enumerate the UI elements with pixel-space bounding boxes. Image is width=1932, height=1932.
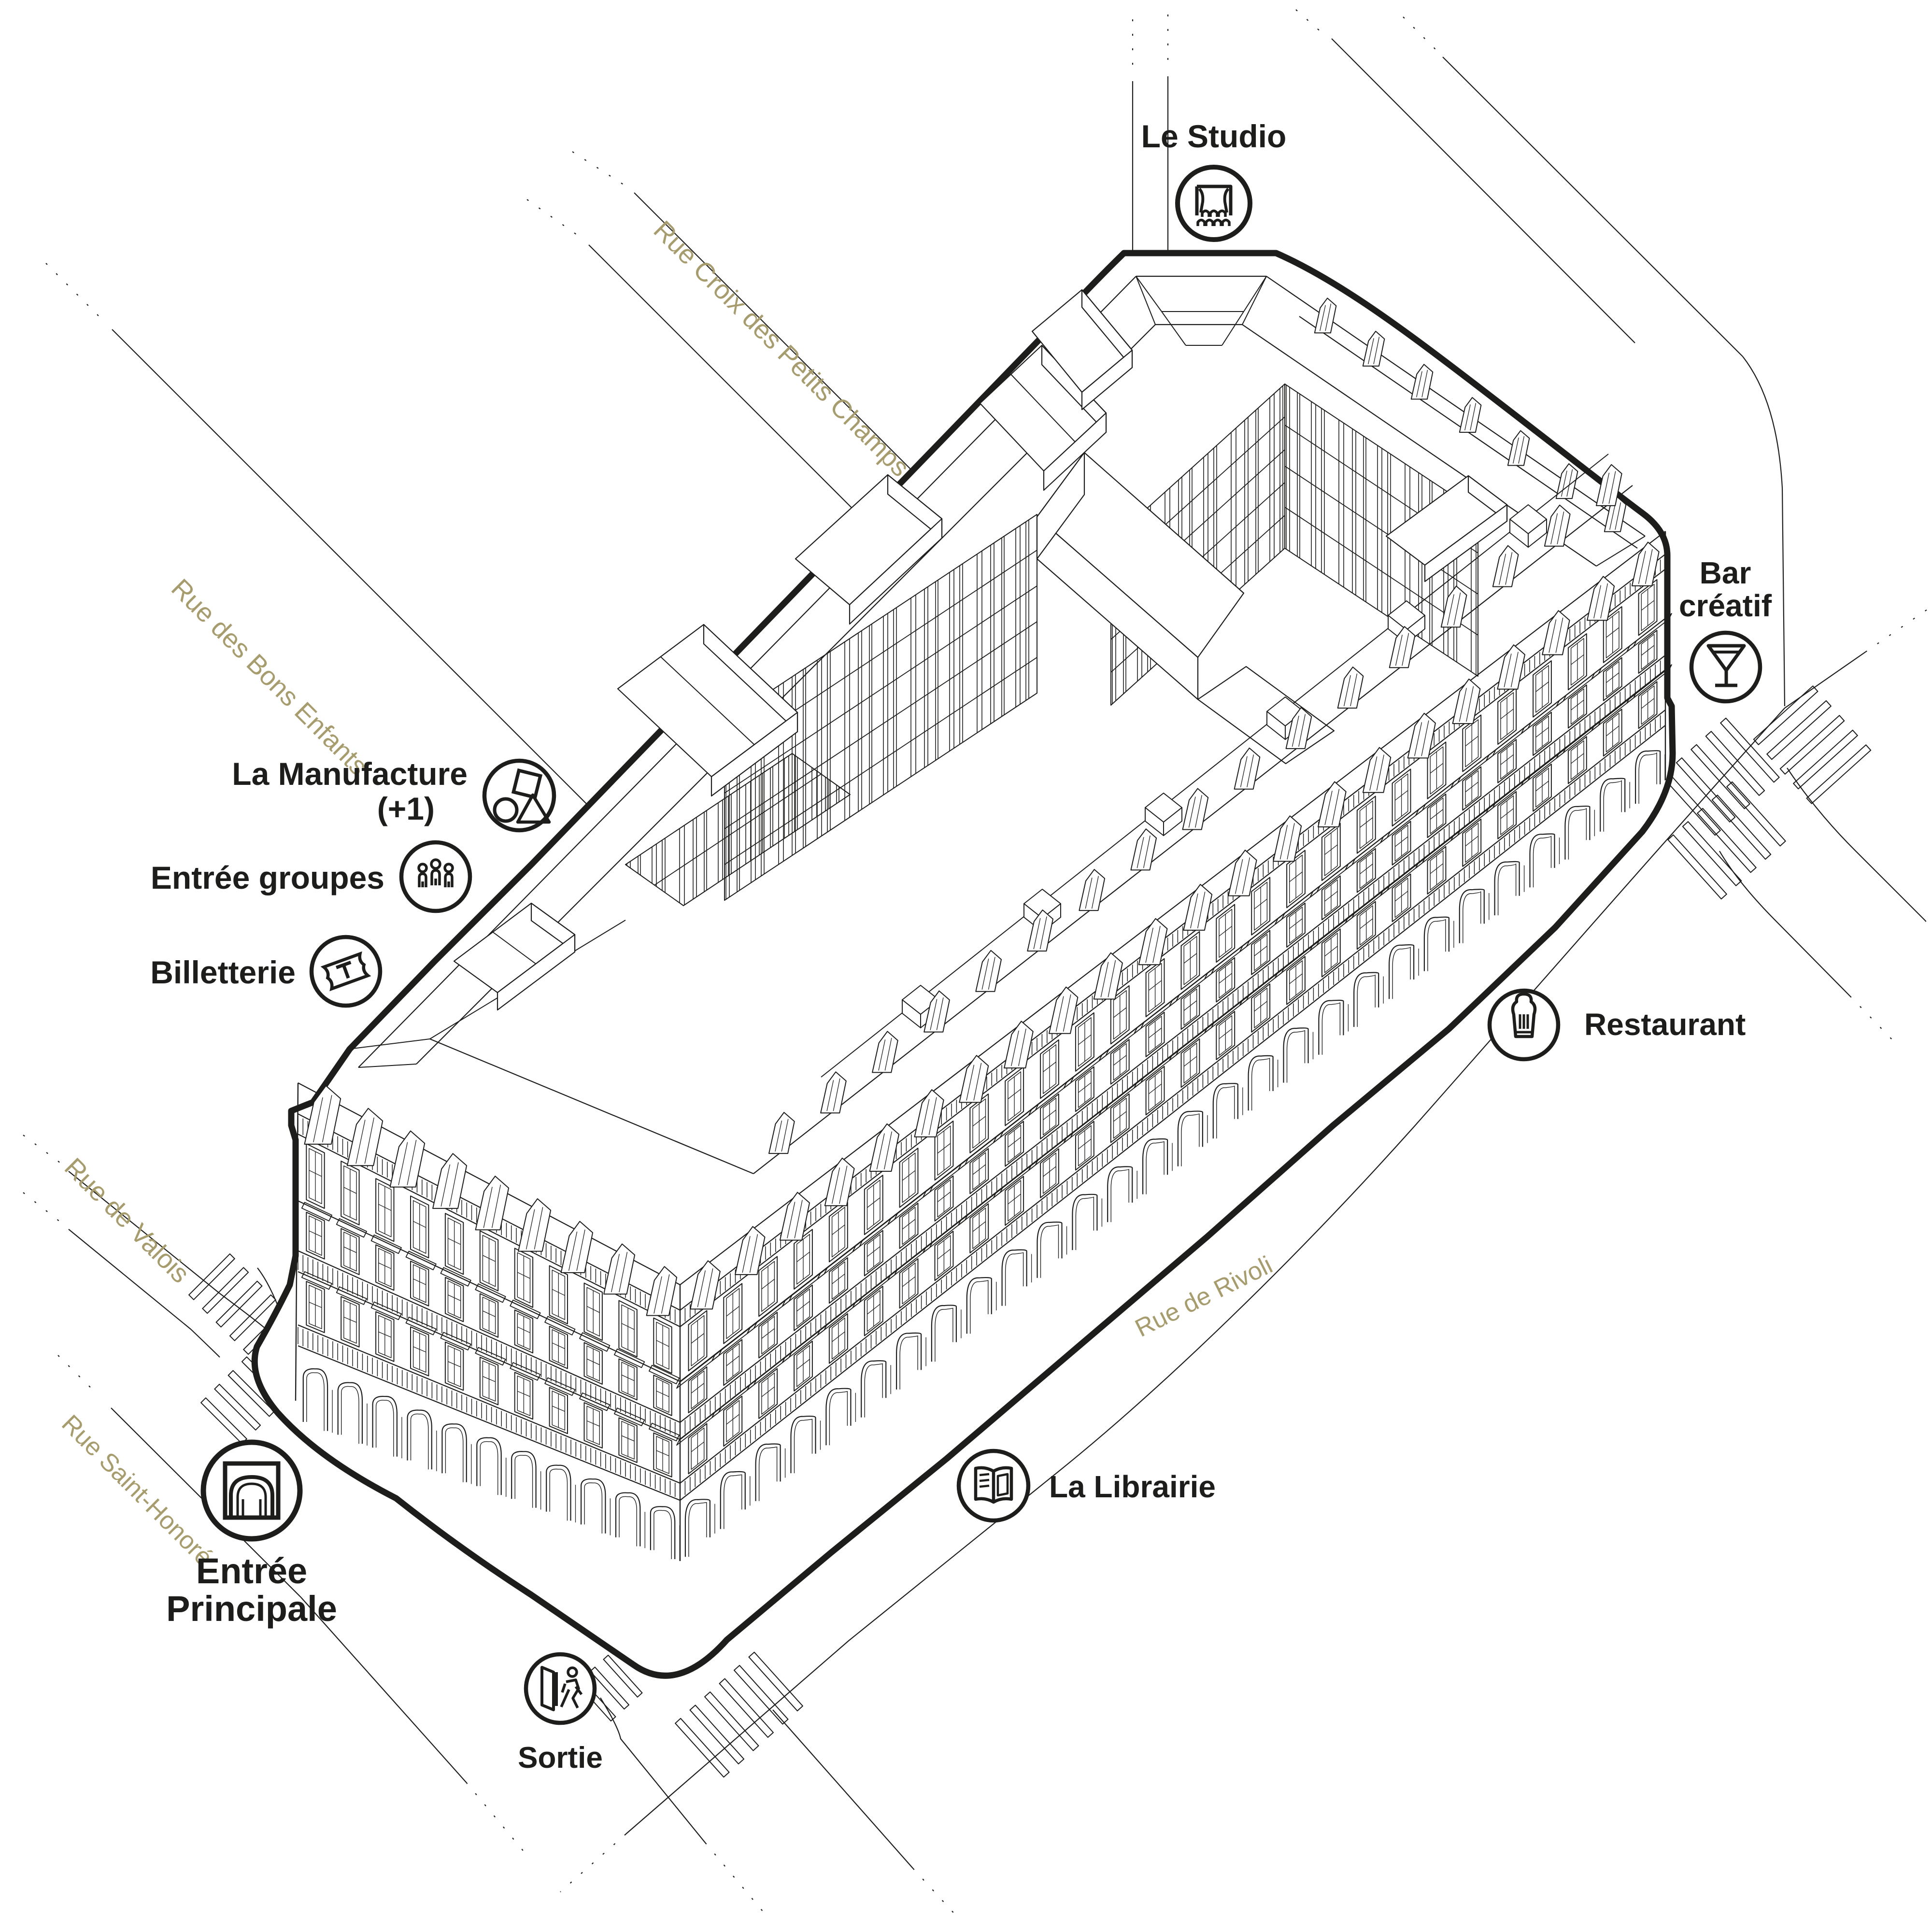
svg-text:(+1): (+1) [377,791,435,826]
svg-text:Le Studio: Le Studio [1141,118,1287,154]
svg-text:Sortie: Sortie [518,1741,603,1775]
svg-text:Billetterie: Billetterie [150,954,296,990]
svg-text:La Manufacture: La Manufacture [232,756,468,792]
svg-text:Principale: Principale [166,1589,337,1629]
svg-text:Entrée groupes: Entrée groupes [151,860,384,895]
svg-text:Entrée: Entrée [196,1551,307,1591]
svg-text:La Librairie: La Librairie [1049,1469,1216,1504]
svg-text:Bar: Bar [1700,555,1751,590]
svg-text:créatif: créatif [1679,588,1772,623]
svg-text:Restaurant: Restaurant [1584,1007,1746,1042]
